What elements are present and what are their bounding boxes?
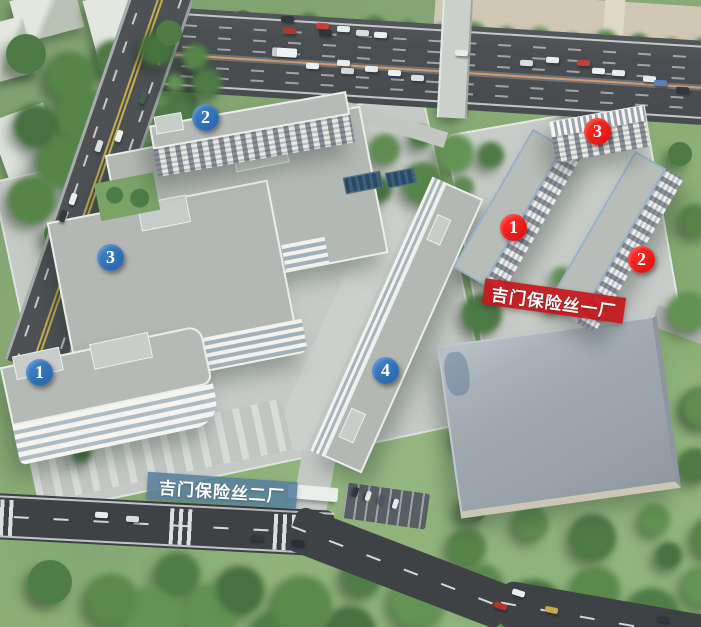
- car: [374, 32, 387, 39]
- tree-cluster: [668, 142, 692, 166]
- car: [319, 30, 332, 37]
- car: [546, 57, 559, 64]
- car: [365, 66, 378, 73]
- roof-shadow-patch: [442, 350, 472, 397]
- truck: [272, 47, 298, 58]
- crosswalk: [0, 499, 18, 536]
- car: [337, 60, 350, 67]
- car: [455, 50, 468, 57]
- car: [411, 75, 424, 82]
- center-dash: [291, 526, 506, 610]
- center-dash: [501, 602, 701, 627]
- tree-lawn-bottom: [28, 560, 72, 604]
- car: [250, 535, 263, 542]
- marker-red-1[interactable]: 1: [500, 214, 527, 241]
- car: [391, 498, 399, 509]
- car: [306, 63, 319, 70]
- car: [520, 60, 533, 67]
- car: [341, 68, 354, 75]
- parking-lot: [342, 482, 430, 529]
- marker-red-3[interactable]: 3: [584, 118, 611, 145]
- marker-blue-4[interactable]: 4: [372, 357, 399, 384]
- marker-blue-1[interactable]: 1: [26, 359, 53, 386]
- tree-cluster: [156, 20, 182, 46]
- car: [356, 30, 369, 37]
- car: [364, 490, 372, 501]
- car: [388, 70, 401, 77]
- car: [126, 516, 139, 523]
- car: [283, 28, 296, 35]
- car: [592, 68, 605, 75]
- car: [378, 494, 386, 505]
- tree-cluster: [6, 34, 46, 74]
- car: [316, 23, 329, 30]
- marker-blue-3[interactable]: 3: [97, 244, 124, 271]
- car: [352, 487, 360, 498]
- crosswalk: [169, 508, 197, 545]
- marker-blue-2[interactable]: 2: [192, 104, 219, 131]
- car: [337, 26, 350, 33]
- marker-red-2[interactable]: 2: [628, 246, 655, 273]
- car: [95, 512, 108, 519]
- car: [676, 87, 689, 94]
- car: [612, 70, 625, 77]
- road-south-c: [497, 580, 701, 627]
- car: [291, 539, 304, 546]
- car: [281, 16, 294, 23]
- car: [577, 60, 590, 67]
- car: [654, 80, 667, 87]
- aerial-site-view: 吉门保险丝一厂 吉门保险丝二厂 1 2 3 4 1 2 3: [0, 0, 701, 627]
- warehouse: [437, 315, 681, 518]
